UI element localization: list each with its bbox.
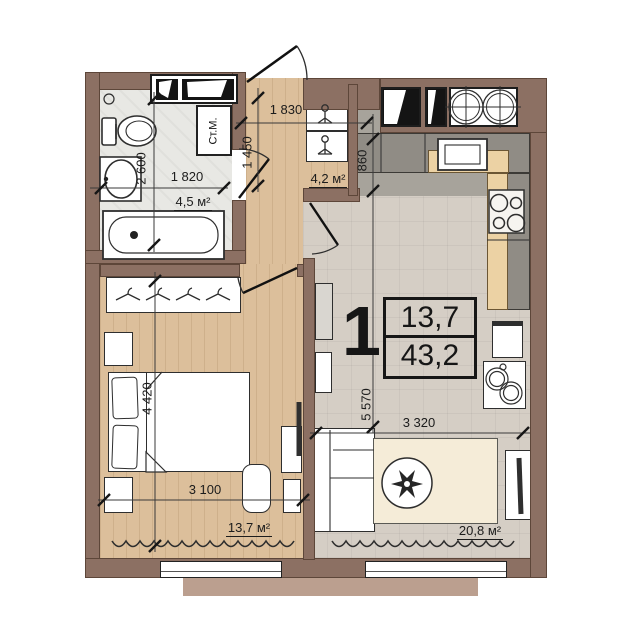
dim-hallway-depth: 1 450 <box>240 125 255 181</box>
nightstand-bottom <box>104 477 133 513</box>
washing-machine: Ст.М. <box>196 105 232 156</box>
washing-machine-label: Ст.М. <box>208 117 220 144</box>
dim-bedroom-width: 3 100 <box>179 482 231 497</box>
wall-segment <box>303 78 380 110</box>
bedroom-window <box>160 561 282 578</box>
bedroom-armchair <box>242 464 271 513</box>
wall-segment <box>100 264 240 277</box>
dim-hallway-width: 1 830 <box>260 102 312 117</box>
entrance-door <box>247 46 307 82</box>
dim-living-width: 3 320 <box>393 415 445 430</box>
exterior-slab <box>183 578 478 596</box>
bedroom-wardrobe <box>106 277 241 313</box>
bedroom-area-label: 13,7 м² <box>214 520 284 535</box>
rug <box>373 438 498 524</box>
total-area-value: 43,2 <box>386 338 474 373</box>
bed-blanket <box>146 372 250 472</box>
wall-segment <box>85 250 246 264</box>
living-cabinet <box>315 283 333 340</box>
dining-table <box>483 361 526 409</box>
living-area-value: 13,7 <box>386 300 474 338</box>
bedroom-shelf <box>283 479 301 513</box>
hall-closet-cell-2 <box>306 131 348 162</box>
vent-shaft-icon <box>156 79 178 100</box>
hallway-area-label: 4,2 м² <box>293 171 363 186</box>
kitchen-vent-box-1 <box>381 87 421 127</box>
unit-area-box: 13,7 43,2 <box>383 297 477 379</box>
vent-shaft-icon <box>182 79 234 100</box>
kitchen-vent-box-2 <box>425 87 447 127</box>
living-desk <box>315 352 332 393</box>
kitchen-counter-top-wood <box>428 150 509 173</box>
living-window <box>365 561 507 578</box>
bathroom-area-label: 4,5 м² <box>158 194 228 209</box>
bedroom-tv-console <box>281 426 302 473</box>
living-area-label: 20,8 м² <box>445 523 515 538</box>
nightstand-top <box>104 332 133 366</box>
wall-segment <box>530 78 547 578</box>
bed-pillow-1 <box>111 377 138 420</box>
kitchen-counter-right-wood <box>487 173 508 310</box>
rooms-count: 1 <box>342 294 381 368</box>
dim-bathroom-depth: 2 600 <box>134 141 149 197</box>
dim-living-length: 5 570 <box>359 377 374 433</box>
wall-segment <box>303 258 315 560</box>
wall-segment <box>85 72 100 578</box>
dining-chair <box>492 321 523 358</box>
sofa <box>312 428 375 532</box>
floor-plan: Ст.М. <box>0 0 632 632</box>
bed-pillow-2 <box>111 425 139 470</box>
tv-console <box>505 450 531 520</box>
kitchen-vent-ducts <box>449 87 518 127</box>
dim-bedroom-length: 4 420 <box>140 371 155 427</box>
dim-bathroom-width: 1 820 <box>161 169 213 184</box>
